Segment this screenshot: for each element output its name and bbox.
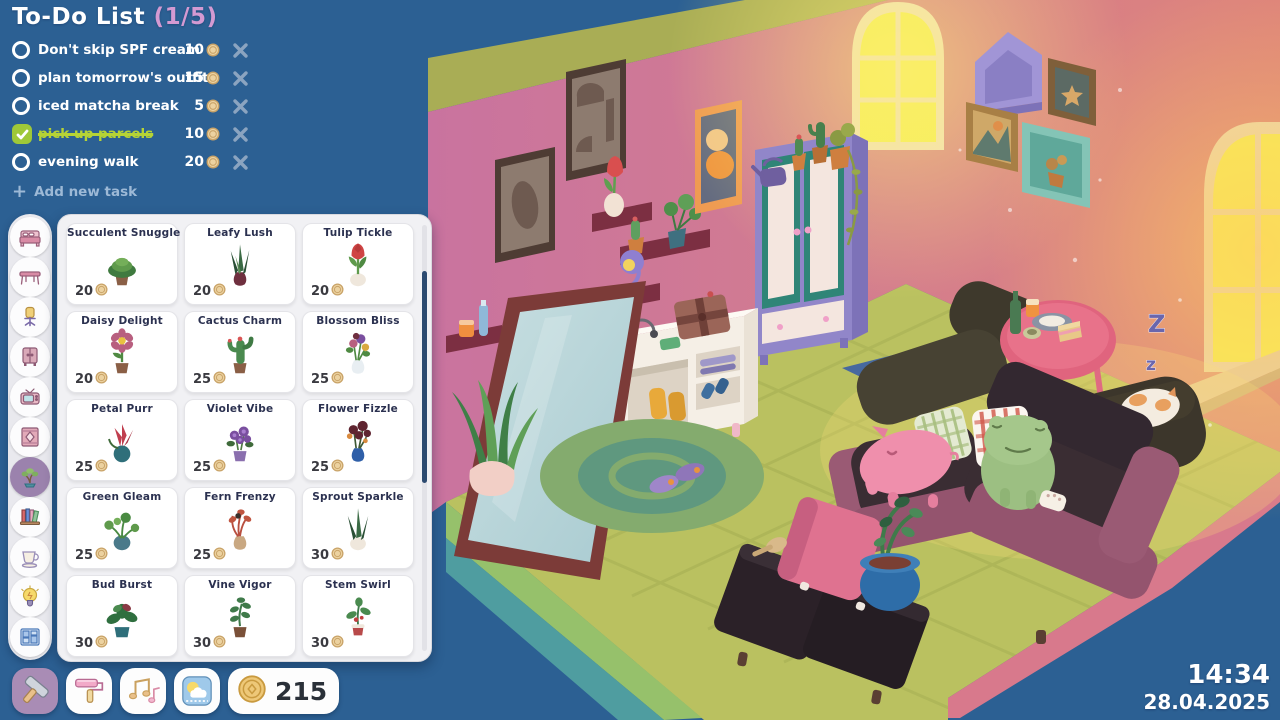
paint-roller-icon <box>69 671 109 711</box>
hammer-button[interactable] <box>12 668 58 714</box>
todo-delete-button[interactable] <box>226 98 254 115</box>
todo-label: pick up parcels <box>38 126 176 142</box>
todo-label: plan tomorrow's outfit <box>38 70 176 86</box>
todo-delete-button[interactable] <box>226 70 254 87</box>
todo-delete-button[interactable] <box>226 42 254 59</box>
shop-item-card[interactable]: Stem Swirl 30 <box>302 575 414 657</box>
sidebar-item-lightbulb[interactable] <box>10 577 50 617</box>
succulent-icon <box>67 237 177 289</box>
plus-icon: + <box>12 187 27 197</box>
todo-reward: 15 <box>176 70 206 86</box>
coin-icon <box>206 43 226 57</box>
floor-plan-icon <box>17 624 43 650</box>
shop-grid: Succulent Snuggle 20 Leafy Lush 20 Tulip… <box>66 223 414 657</box>
hammer-icon <box>15 671 55 711</box>
sleep-z-small: z <box>1146 355 1156 375</box>
todo-title: To-Do List (1/5) <box>12 4 272 30</box>
todo-panel: To-Do List (1/5) Don't skip SPF cream 10… <box>12 4 272 200</box>
shop-item-price: 30 <box>311 635 344 652</box>
coin-icon <box>213 635 226 652</box>
todo-item: pick up parcels 10 <box>12 120 272 148</box>
coin-icon <box>213 547 226 564</box>
music-button[interactable] <box>120 668 166 714</box>
coin-icon <box>213 371 226 388</box>
todo-delete-button[interactable] <box>226 126 254 143</box>
add-task-button[interactable]: + Add new task <box>12 184 272 200</box>
rug-icon <box>17 424 43 450</box>
category-sidebar <box>8 214 52 660</box>
violets-icon <box>185 413 295 465</box>
todo-checkbox[interactable] <box>12 153 30 171</box>
table-icon <box>17 264 43 290</box>
shop-item-card[interactable]: Flower Fizzle 25 <box>302 399 414 481</box>
shop-panel: Succulent Snuggle 20 Leafy Lush 20 Tulip… <box>57 214 432 662</box>
painting-abstract-1[interactable] <box>495 147 555 263</box>
sidebar-item-cup[interactable] <box>10 537 50 577</box>
coin-icon <box>95 283 108 300</box>
shop-item-card[interactable]: Violet Vibe 25 <box>184 399 296 481</box>
todo-checkbox[interactable] <box>12 124 32 144</box>
shop-item-price: 25 <box>193 547 226 564</box>
leafy-pot-icon <box>67 589 177 641</box>
bed-icon <box>17 224 43 250</box>
snake-light-icon <box>303 501 413 553</box>
todo-counter: (1/5) <box>154 4 218 30</box>
coin-icon <box>331 459 344 476</box>
weather-icon <box>177 671 217 711</box>
clock: 14:34 28.04.2025 <box>1143 660 1270 714</box>
wardrobe[interactable] <box>753 122 868 365</box>
add-task-label: Add new task <box>34 184 137 200</box>
coin-count: 215 <box>275 677 327 706</box>
bottom-toolbar: 215 <box>12 668 339 714</box>
weather-button[interactable] <box>174 668 220 714</box>
sleep-z-large: Z <box>1148 310 1165 338</box>
coin-icon <box>206 127 226 141</box>
todo-reward: 10 <box>176 126 206 142</box>
coin-icon <box>213 283 226 300</box>
shop-item-price: 25 <box>311 371 344 388</box>
wardrobe-icon <box>17 344 43 370</box>
shop-item-price: 20 <box>193 283 226 300</box>
sidebar-item-rug[interactable] <box>10 417 50 457</box>
dark-bouquet-icon <box>303 413 413 465</box>
plant-icon <box>17 464 43 490</box>
shop-item-card[interactable]: Daisy Delight 20 <box>66 311 178 393</box>
shop-item-price: 20 <box>311 283 344 300</box>
cactus-icon <box>185 325 295 377</box>
todo-label: iced matcha break <box>38 98 176 114</box>
todo-item: plan tomorrow's outfit 15 <box>12 64 272 92</box>
coin-icon <box>206 71 226 85</box>
shop-item-price: 20 <box>75 283 108 300</box>
coin-icon <box>331 371 344 388</box>
coin-icon <box>95 371 108 388</box>
red-fern-icon <box>185 501 295 553</box>
shop-item-card[interactable]: Cactus Charm 25 <box>184 311 296 393</box>
scrollbar-thumb[interactable] <box>422 271 427 483</box>
coin-icon <box>234 671 270 711</box>
sidebar-item-wardrobe[interactable] <box>10 337 50 377</box>
coin-icon <box>95 635 108 652</box>
tulip-icon <box>303 237 413 289</box>
sidebar-item-plant[interactable] <box>10 457 50 497</box>
paint-roller-button[interactable] <box>66 668 112 714</box>
round-leaf-icon <box>67 501 177 553</box>
todo-label: evening walk <box>38 154 176 170</box>
sidebar-item-bed[interactable] <box>10 217 50 257</box>
shop-item-price: 30 <box>193 635 226 652</box>
shop-item-card[interactable]: Bud Burst 30 <box>66 575 178 657</box>
game-screen: Z z <box>0 0 1280 720</box>
coin-icon <box>331 283 344 300</box>
coin-icon <box>331 635 344 652</box>
shop-item-price: 30 <box>75 635 108 652</box>
music-icon <box>123 671 163 711</box>
sidebar-item-bookshelf[interactable] <box>10 497 50 537</box>
bookshelf-icon <box>17 504 43 530</box>
coin-icon <box>95 459 108 476</box>
todo-list: Don't skip SPF cream 10 plan tomorrow's … <box>12 36 272 176</box>
coin-icon <box>213 459 226 476</box>
shop-item-price: 20 <box>75 371 108 388</box>
shop-item-card[interactable]: Tulip Tickle 20 <box>302 223 414 305</box>
shop-item-card[interactable]: Succulent Snuggle 20 <box>66 223 178 305</box>
snake-dark-icon <box>185 237 295 289</box>
coin-icon <box>206 155 226 169</box>
sidebar-item-table[interactable] <box>10 257 50 297</box>
todo-reward: 10 <box>176 42 206 58</box>
tv-icon <box>17 384 43 410</box>
scrollbar-track[interactable] <box>422 225 427 651</box>
lightbulb-icon <box>17 584 43 610</box>
shop-item-card[interactable]: Petal Purr 25 <box>66 399 178 481</box>
todo-checkbox[interactable] <box>12 41 30 59</box>
sidebar-item-chair[interactable] <box>10 297 50 337</box>
coin-icon <box>95 547 108 564</box>
coin-icon <box>206 99 226 113</box>
todo-checkbox[interactable] <box>12 69 30 87</box>
sidebar-item-floor-plan[interactable] <box>10 617 50 657</box>
shop-item-price: 25 <box>75 547 108 564</box>
clock-time: 14:34 <box>1143 660 1270 690</box>
todo-reward: 5 <box>176 98 206 114</box>
red-lilies-icon <box>67 413 177 465</box>
chair-icon <box>17 304 43 330</box>
shop-item-price: 25 <box>75 459 108 476</box>
shop-item-card[interactable]: Blossom Bliss 25 <box>302 311 414 393</box>
shop-item-card[interactable]: Vine Vigor 30 <box>184 575 296 657</box>
todo-item: evening walk 20 <box>12 148 272 176</box>
sidebar-item-tv[interactable] <box>10 377 50 417</box>
todo-item: Don't skip SPF cream 10 <box>12 36 272 64</box>
todo-reward: 20 <box>176 154 206 170</box>
coin-counter: 215 <box>228 668 339 714</box>
stem-red-icon <box>303 589 413 641</box>
shop-item-price: 30 <box>311 547 344 564</box>
bouquet-icon <box>303 325 413 377</box>
shop-item-card[interactable]: Sprout Sparkle 30 <box>302 487 414 569</box>
shop-item-price: 25 <box>311 459 344 476</box>
coin-icon <box>331 547 344 564</box>
todo-label: Don't skip SPF cream <box>38 42 176 58</box>
shop-item-card[interactable]: Leafy Lush 20 <box>184 223 296 305</box>
daisy-icon <box>67 325 177 377</box>
shop-item-price: 25 <box>193 371 226 388</box>
todo-item: iced matcha break 5 <box>12 92 272 120</box>
shop-item-price: 25 <box>193 459 226 476</box>
shop-item-card[interactable]: Green Gleam 25 <box>66 487 178 569</box>
shop-item-card[interactable]: Fern Frenzy 25 <box>184 487 296 569</box>
cup-icon <box>17 544 43 570</box>
todo-checkbox[interactable] <box>12 97 30 115</box>
todo-delete-button[interactable] <box>226 154 254 171</box>
mountain-frame[interactable] <box>966 102 1018 172</box>
clock-date: 28.04.2025 <box>1143 690 1270 714</box>
round-rug[interactable] <box>540 419 764 533</box>
vine-icon <box>185 589 295 641</box>
